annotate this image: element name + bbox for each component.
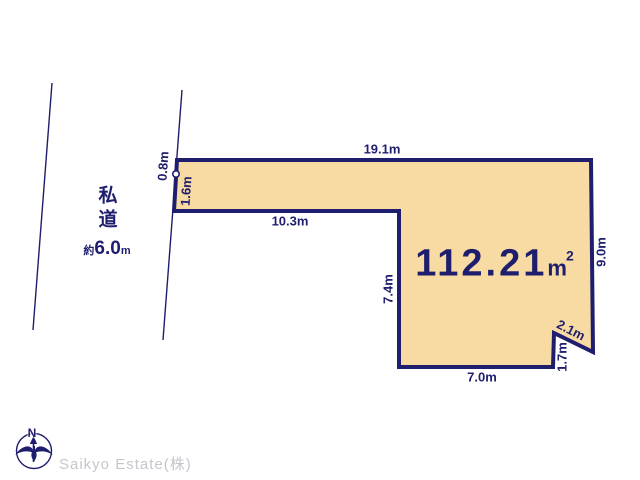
plot-area-superscript: 2 — [566, 248, 574, 264]
road-width-unit: m — [121, 245, 131, 257]
dimension-notch-vertical: 1.7m — [555, 342, 570, 372]
plot-area-unit: m — [547, 256, 567, 281]
road-width-label: 約6.0m — [83, 238, 130, 260]
dimension-top-edge: 19.1m — [364, 142, 401, 157]
bird-logo-icon — [15, 446, 53, 462]
road-boundary-line-left — [33, 83, 52, 330]
road-width-value: 6.0 — [94, 238, 120, 259]
boundary-point-marker — [173, 171, 179, 177]
road-boundary-line-right — [163, 90, 182, 340]
plot-area-label: 112.21m2 — [415, 243, 575, 286]
dimension-right-edge: 9.0m — [594, 237, 609, 267]
plot-area-value: 112.21 — [415, 243, 547, 285]
dimension-upper-left-a: 0.8m — [154, 151, 171, 182]
dimension-upper-left-b: 1.6m — [177, 176, 194, 207]
road-name-label: 私道 — [93, 185, 120, 233]
road-width-prefix: 約 — [83, 245, 94, 257]
dimension-mid-left-edge: 7.4m — [381, 274, 396, 304]
company-watermark: Saikyo Estate(株) — [59, 453, 192, 474]
dimension-bottom-edge: 7.0m — [467, 370, 497, 385]
compass-north-label: N — [28, 426, 37, 440]
dimension-strip-bottom-edge: 10.3m — [272, 214, 309, 229]
land-plot-diagram: N 19.1m 0.8m 1.6m 10.3m 7.4m 9.0m 2.1m 1… — [0, 0, 640, 480]
